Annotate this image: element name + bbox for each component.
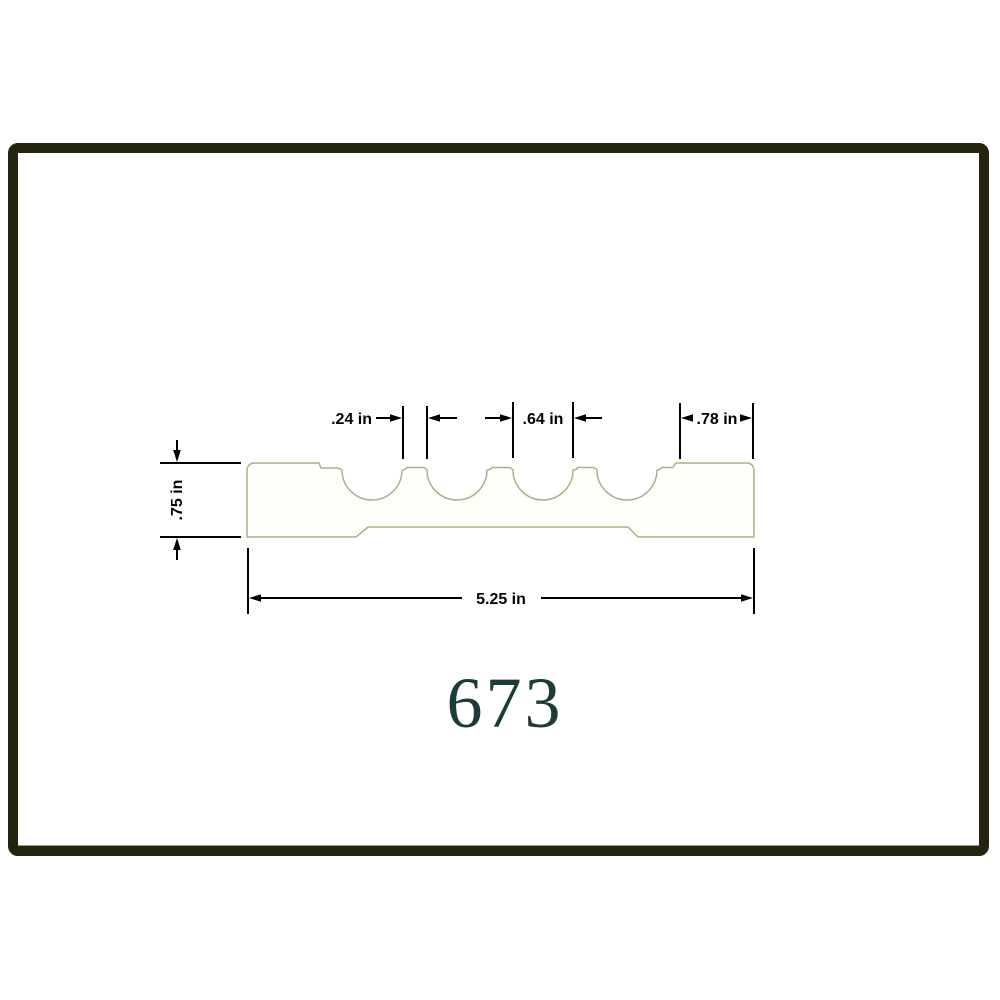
drawing-canvas: .24 in .64 in .78 in . bbox=[0, 0, 1000, 1000]
arrow-right-icon bbox=[500, 414, 512, 422]
arrow-left-icon bbox=[249, 594, 261, 602]
dimension-flute-width: .64 in bbox=[485, 402, 602, 458]
dimension-label-flute-spacing: .24 in bbox=[331, 411, 372, 428]
arrow-right-icon bbox=[390, 414, 402, 422]
dimension-end-flat-width: .78 in bbox=[680, 403, 753, 459]
technical-drawing: .24 in .64 in .78 in . bbox=[0, 0, 1000, 1000]
dimension-label-thickness: .75 in bbox=[169, 480, 186, 521]
dimension-label-overall-width: 5.25 in bbox=[476, 591, 526, 608]
arrow-right-icon bbox=[741, 594, 753, 602]
dimension-flute-spacing: .24 in bbox=[331, 406, 457, 459]
molding-profile-outline bbox=[247, 463, 754, 537]
molding-profile bbox=[247, 463, 754, 537]
dimension-overall-width: 5.25 in bbox=[248, 548, 754, 614]
dimension-thickness: .75 in bbox=[160, 440, 241, 560]
arrow-up-icon bbox=[173, 538, 181, 550]
product-number: 673 bbox=[447, 663, 564, 743]
arrow-left-icon bbox=[574, 414, 586, 422]
dimension-label-end-flat-width: .78 in bbox=[697, 411, 738, 428]
arrow-right-icon bbox=[740, 414, 752, 422]
arrow-down-icon bbox=[173, 450, 181, 462]
arrow-left-icon bbox=[428, 414, 440, 422]
dimension-label-flute-width: .64 in bbox=[523, 411, 564, 428]
arrow-left-icon bbox=[681, 414, 693, 422]
